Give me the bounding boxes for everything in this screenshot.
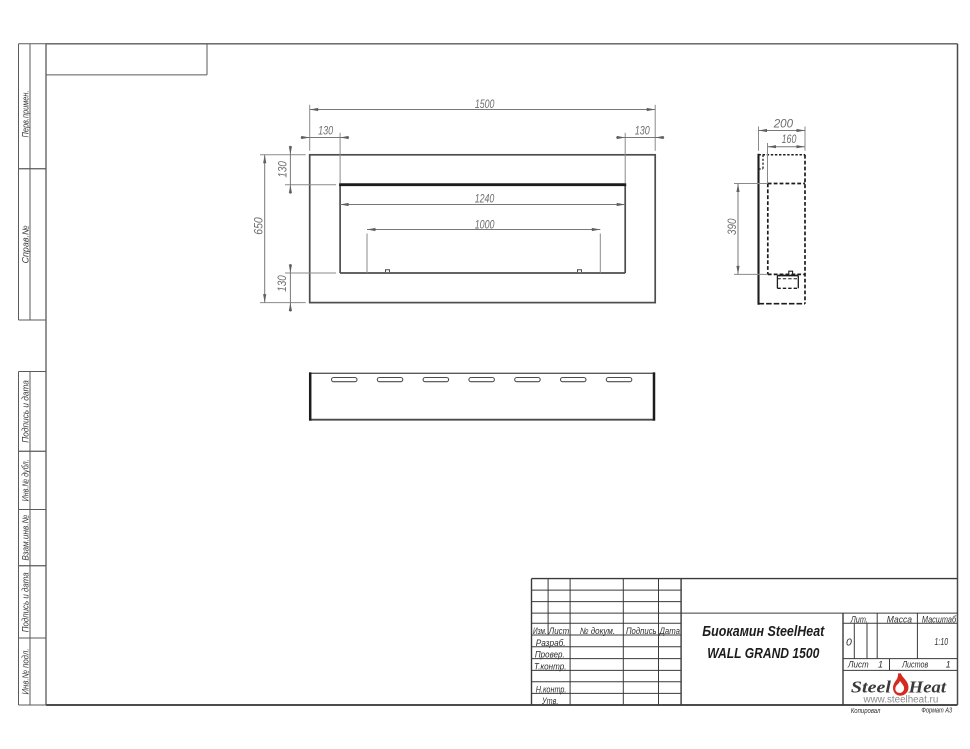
svg-text:0: 0 — [846, 636, 852, 648]
svg-text:Т.контр.: Т.контр. — [534, 661, 567, 671]
svg-text:Утв.: Утв. — [541, 696, 558, 706]
svg-text:Лит.: Лит. — [850, 614, 868, 624]
svg-text:Перв.примен.: Перв.примен. — [20, 91, 30, 138]
svg-text:Подпись: Подпись — [626, 626, 657, 636]
svg-text:Дата: Дата — [659, 626, 680, 636]
svg-text:1240: 1240 — [475, 191, 495, 205]
svg-text:1: 1 — [878, 659, 883, 669]
svg-text:Масштаб: Масштаб — [922, 614, 957, 624]
svg-text:160: 160 — [782, 132, 797, 146]
svg-text:1000: 1000 — [475, 217, 495, 231]
svg-text:130: 130 — [275, 161, 289, 178]
svg-text:Разраб.: Разраб. — [536, 638, 566, 648]
svg-text:130: 130 — [635, 123, 650, 137]
svg-text:Лист: Лист — [548, 626, 570, 636]
svg-text:www.steelheat.ru: www.steelheat.ru — [863, 695, 939, 706]
svg-text:200: 200 — [773, 117, 794, 131]
svg-text:Инв.№ дубл.: Инв.№ дубл. — [20, 459, 30, 501]
svg-text:Копировал: Копировал — [851, 706, 881, 715]
svg-text:Взам.инв.№: Взам.инв.№ — [20, 514, 30, 560]
svg-text:Масса: Масса — [887, 614, 912, 624]
svg-text:130: 130 — [275, 275, 289, 292]
svg-text:1500: 1500 — [475, 97, 495, 111]
svg-text:Инв.№ подл.: Инв.№ подл. — [20, 649, 30, 695]
svg-text:Подпись и дата: Подпись и дата — [20, 572, 30, 632]
svg-text:Листов: Листов — [901, 659, 928, 669]
svg-text:1: 1 — [946, 659, 951, 669]
svg-text:Изм.: Изм. — [533, 626, 547, 636]
svg-text:Н.контр.: Н.контр. — [536, 684, 567, 694]
svg-text:1:10: 1:10 — [935, 636, 949, 648]
svg-text:№ докум.: № докум. — [580, 626, 615, 636]
svg-text:Лист: Лист — [847, 659, 869, 669]
svg-text:650: 650 — [252, 217, 266, 235]
svg-text:390: 390 — [725, 218, 739, 235]
svg-text:Справ.№: Справ.№ — [20, 225, 30, 263]
svg-text:130: 130 — [318, 123, 333, 137]
svg-text:Формат А3: Формат А3 — [921, 706, 952, 715]
svg-text:Провер.: Провер. — [535, 650, 565, 660]
svg-text:WALL GRAND 1500: WALL GRAND 1500 — [707, 645, 820, 662]
svg-text:Подпись и дата: Подпись и дата — [20, 380, 30, 443]
svg-text:Биокамин SteelHeat: Биокамин SteelHeat — [702, 623, 825, 640]
